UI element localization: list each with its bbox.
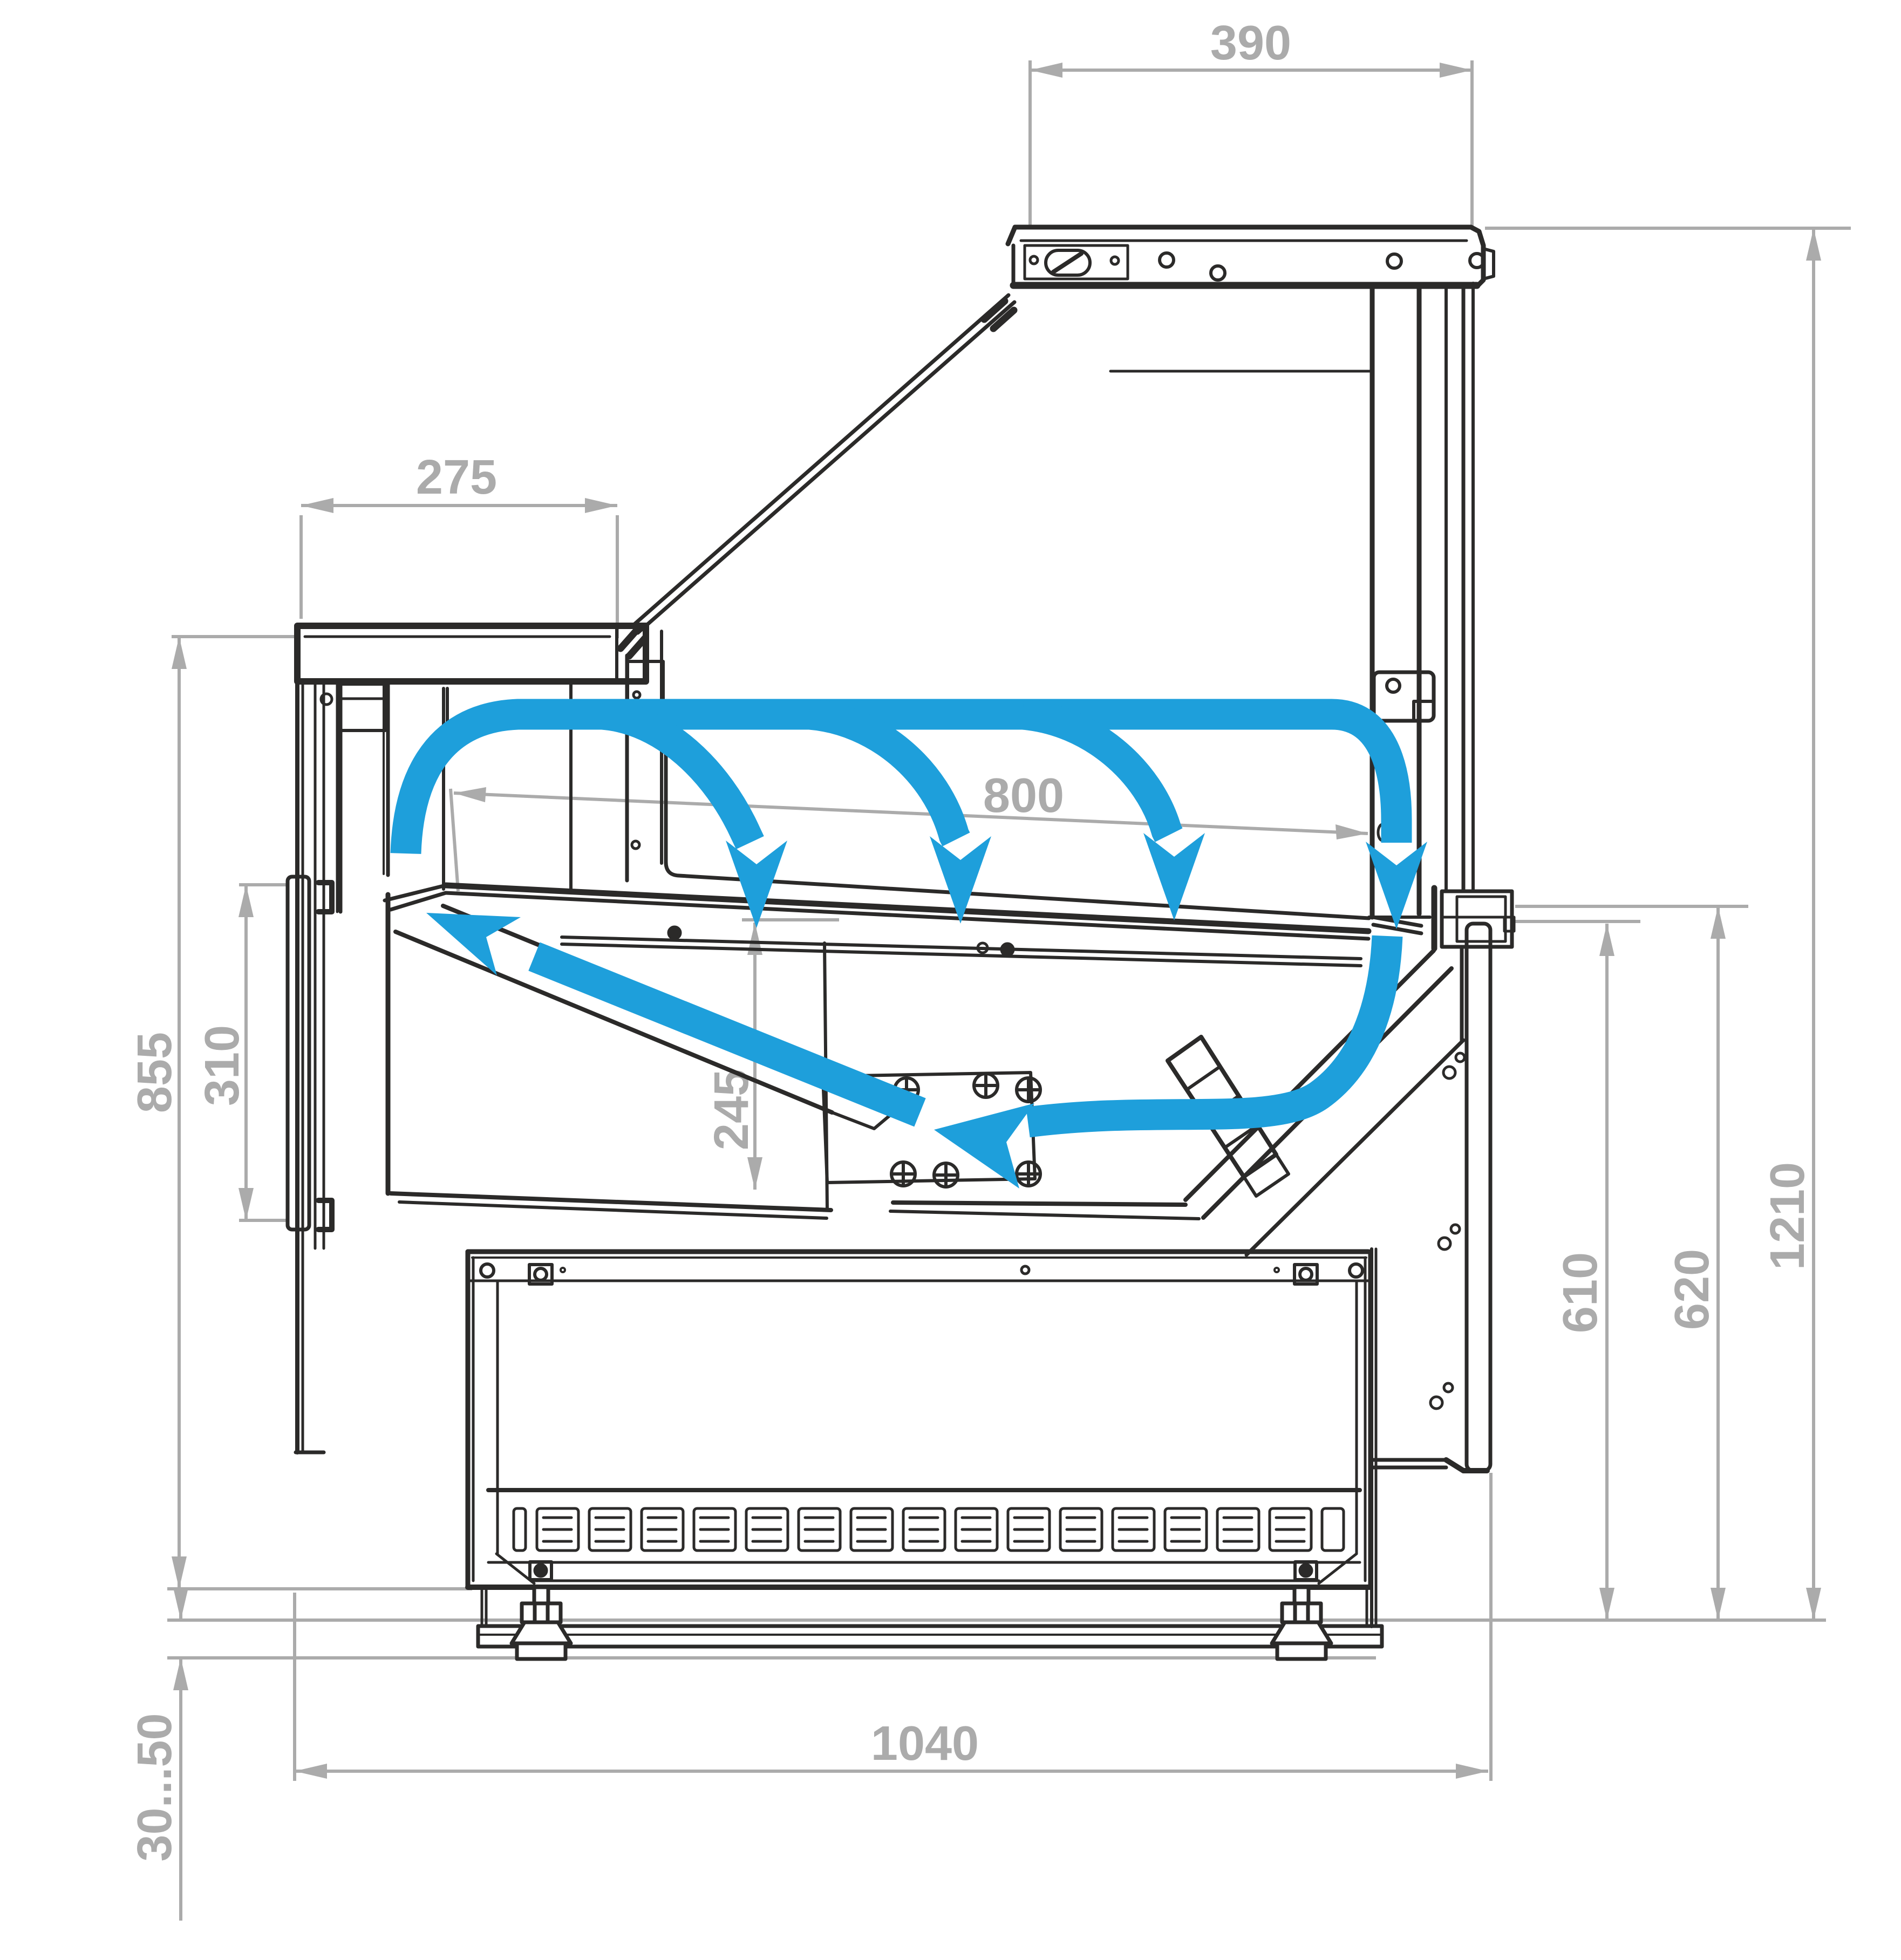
svg-text:610: 610 xyxy=(1553,1252,1607,1333)
svg-text:390: 390 xyxy=(1210,16,1291,70)
svg-text:800: 800 xyxy=(983,769,1064,823)
svg-text:275: 275 xyxy=(416,450,497,504)
svg-text:30...50: 30...50 xyxy=(128,1713,182,1861)
svg-text:310: 310 xyxy=(195,1025,249,1106)
svg-text:1040: 1040 xyxy=(871,1717,979,1771)
svg-text:855: 855 xyxy=(128,1032,182,1113)
svg-text:620: 620 xyxy=(1665,1249,1719,1330)
svg-text:245: 245 xyxy=(705,1069,759,1150)
svg-text:1210: 1210 xyxy=(1761,1162,1815,1270)
